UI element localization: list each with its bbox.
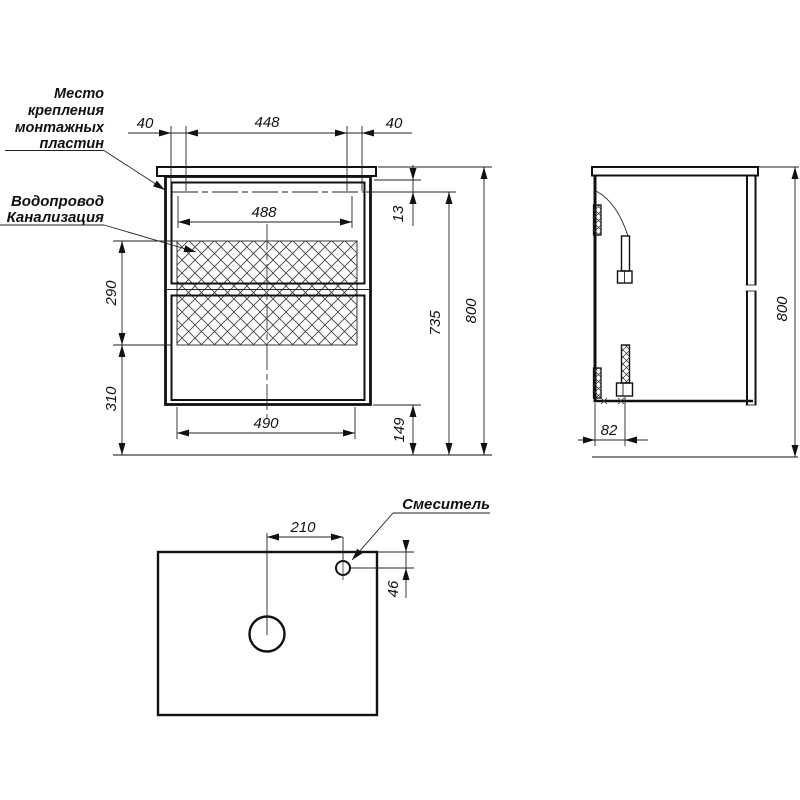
dim-290: 290 — [103, 280, 120, 307]
dim-40-right: 40 — [386, 115, 403, 132]
side-view: 82 800 — [578, 167, 799, 457]
bracket-lower-foot — [617, 383, 633, 396]
dim-490: 490 — [177, 407, 355, 439]
svg-text:13: 13 — [390, 205, 407, 222]
countertop-front — [157, 167, 376, 176]
dim-149: 149 — [373, 405, 421, 455]
mounting-leader — [104, 151, 165, 191]
svg-text:735: 735 — [427, 310, 444, 336]
svg-text:пластин: пластин — [39, 136, 104, 152]
svg-text:82: 82 — [601, 422, 618, 439]
dim-310: 310 — [103, 386, 120, 412]
countertop-side — [592, 167, 758, 176]
mounting-plates-label: Место крепления монтажных пластин — [5, 86, 165, 190]
dim-735: 735 — [427, 192, 449, 455]
svg-text:Канализация: Канализация — [7, 209, 104, 226]
plumbing-leader — [104, 225, 196, 252]
svg-text:800: 800 — [463, 298, 480, 324]
drawing-page: 40 448 40 488 13 — [0, 0, 800, 800]
dim-82: 82 — [578, 397, 648, 446]
dim-210: 210 — [267, 519, 343, 537]
svg-text:488: 488 — [251, 204, 277, 221]
dim-46: 46 — [351, 540, 414, 598]
front-view: 40 448 40 488 13 — [103, 114, 492, 455]
svg-text:Водопровод: Водопровод — [11, 193, 104, 210]
mounting-plate-bottom — [594, 368, 602, 398]
svg-text:210: 210 — [289, 519, 316, 536]
svg-text:крепления: крепления — [28, 103, 105, 119]
svg-text:46: 46 — [385, 580, 402, 597]
svg-text:Место: Место — [54, 86, 104, 102]
mixer-label: Смеситель — [352, 496, 490, 560]
svg-text:149: 149 — [391, 417, 408, 443]
drawer-panel-side — [746, 176, 757, 406]
dim-13: 13 — [366, 165, 456, 226]
dim-800-side: 800 — [759, 167, 799, 457]
bracket-upper — [622, 236, 630, 271]
dim-40-left: 40 — [137, 115, 154, 132]
mounting-plate-top — [594, 205, 602, 235]
dim-448: 448 — [254, 114, 280, 131]
dim-488: 488 — [178, 196, 352, 228]
svg-text:800: 800 — [774, 296, 791, 322]
countertop-plan — [158, 552, 377, 715]
mixer-label-text: Смеситель — [402, 496, 490, 513]
technical-drawing: 40 448 40 488 13 — [0, 0, 800, 800]
svg-text:490: 490 — [253, 415, 279, 432]
svg-text:монтажных: монтажных — [15, 120, 105, 136]
bracket-lower — [622, 345, 630, 383]
plan-view: 210 46 Смеситель — [158, 496, 490, 715]
